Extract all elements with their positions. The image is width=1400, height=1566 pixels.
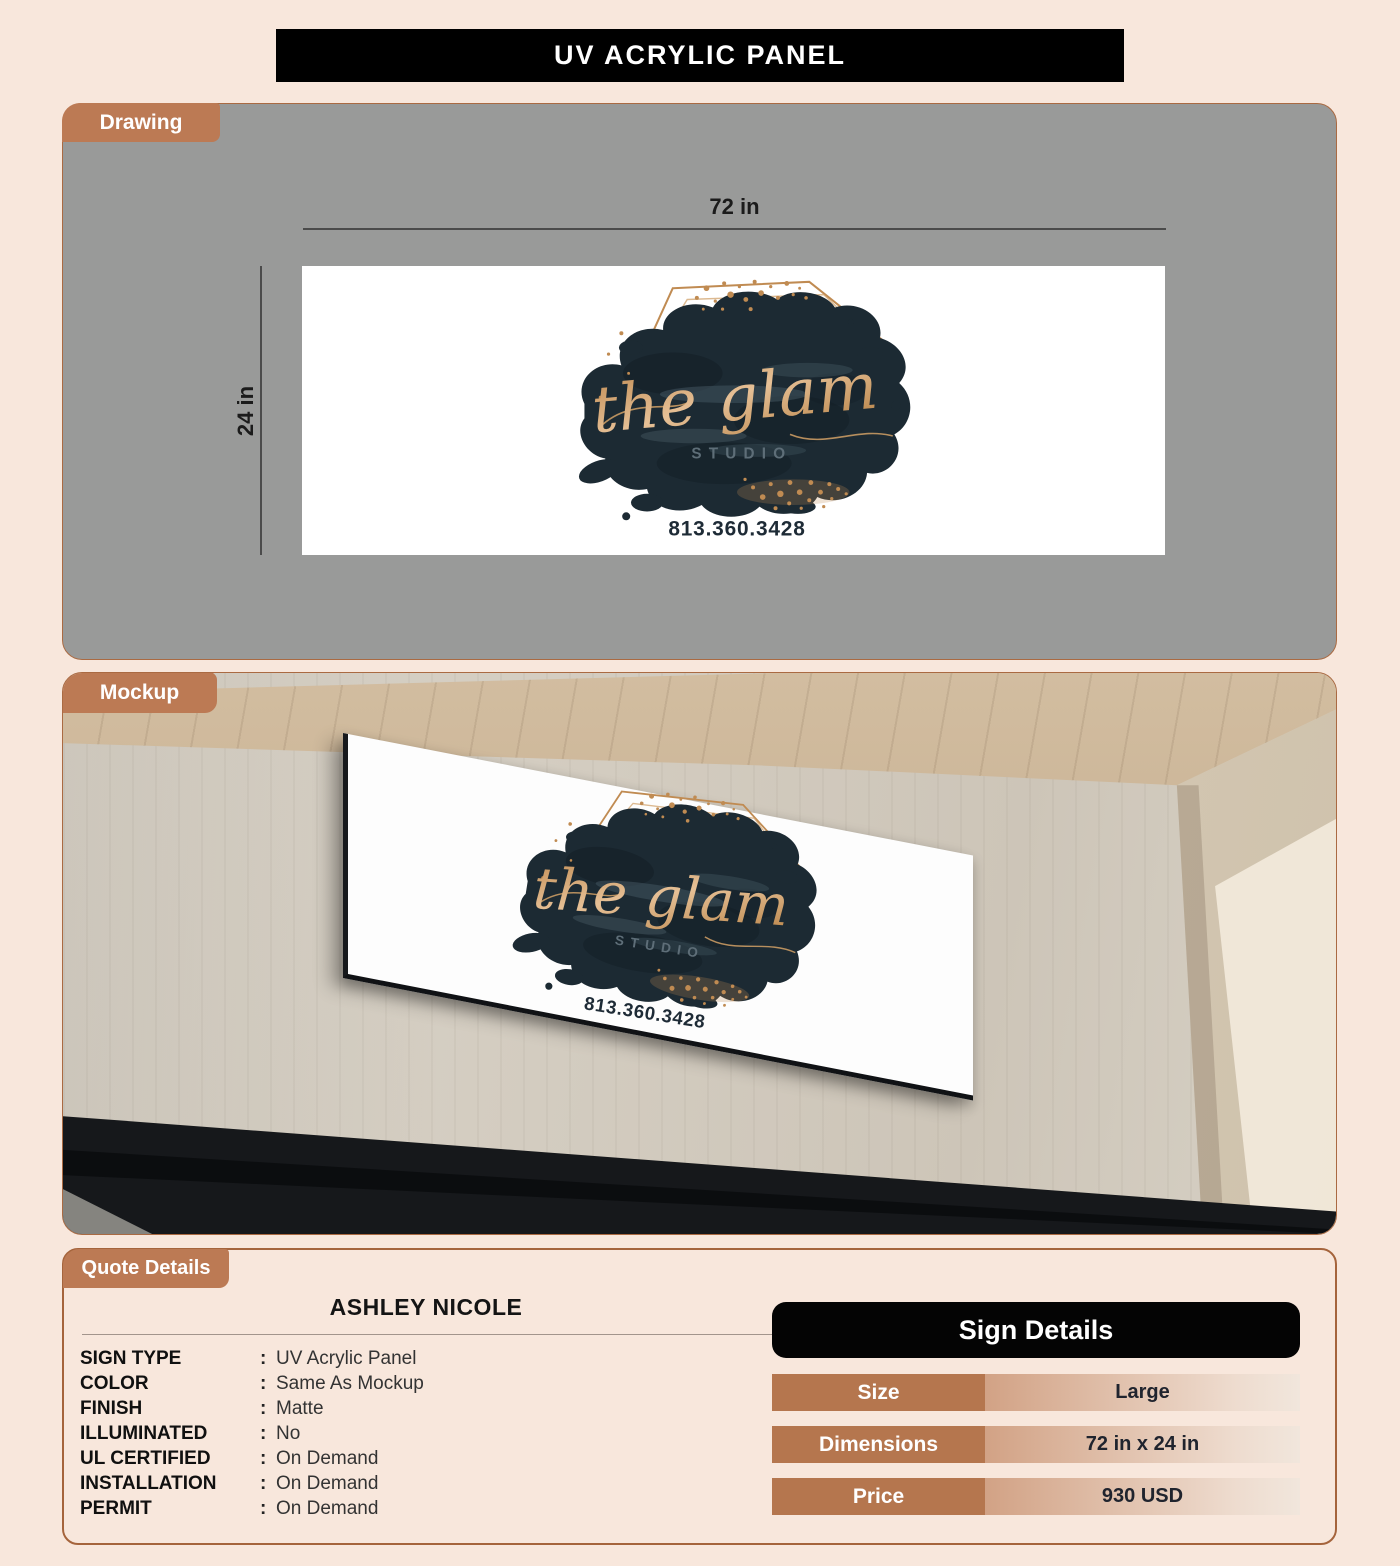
table-row: Dimensions 72 in x 24 in bbox=[772, 1426, 1300, 1463]
field-value: UV Acrylic Panel bbox=[276, 1348, 772, 1370]
field-label: INSTALLATION bbox=[80, 1473, 260, 1495]
mockup-tab: Mockup bbox=[62, 672, 217, 713]
drawing-section: Drawing 72 in 24 in the glam STUDIO 813.… bbox=[62, 103, 1337, 660]
glam-logo-drawing: the glam STUDIO 813.360.3428 bbox=[552, 277, 922, 550]
quote-field-row: SIGN TYPE : UV Acrylic Panel bbox=[80, 1346, 772, 1371]
quote-details-tab: Quote Details bbox=[63, 1249, 229, 1288]
field-value: No bbox=[276, 1423, 772, 1445]
logo-phone-text: 813.360.3428 bbox=[668, 518, 805, 541]
field-value: On Demand bbox=[276, 1473, 772, 1495]
quote-fields-list: SIGN TYPE : UV Acrylic Panel COLOR : Sam… bbox=[80, 1346, 772, 1521]
customer-name-divider bbox=[82, 1334, 772, 1335]
height-dimension-line bbox=[260, 266, 262, 555]
quote-field-row: FINISH : Matte bbox=[80, 1396, 772, 1421]
row-value-price: 930 USD bbox=[985, 1478, 1300, 1515]
field-label: SIGN TYPE bbox=[80, 1348, 260, 1370]
quote-field-row: ILLUMINATED : No bbox=[80, 1421, 772, 1446]
row-value-dimensions: 72 in x 24 in bbox=[985, 1426, 1300, 1463]
mockup-tab-label: Mockup bbox=[100, 681, 179, 705]
quote-details-tab-label: Quote Details bbox=[82, 1257, 211, 1280]
field-value: Matte bbox=[276, 1398, 772, 1420]
field-value: On Demand bbox=[276, 1498, 772, 1520]
quote-field-row: COLOR : Same As Mockup bbox=[80, 1371, 772, 1396]
field-separator: : bbox=[260, 1373, 276, 1395]
mockup-section: the glam STUDIO 813.360.3428 Mockup bbox=[62, 672, 1337, 1235]
sign-details-table: Sign Details Size Large Dimensions 72 in… bbox=[772, 1302, 1300, 1530]
quote-sheet-page: { "title": "UV ACRYLIC PANEL", "drawing"… bbox=[0, 0, 1400, 1566]
field-label: FINISH bbox=[80, 1398, 260, 1420]
field-label: UL CERTIFIED bbox=[80, 1448, 260, 1470]
field-label: ILLUMINATED bbox=[80, 1423, 260, 1445]
field-separator: : bbox=[260, 1473, 276, 1495]
field-separator: : bbox=[260, 1448, 276, 1470]
drawing-tab-label: Drawing bbox=[100, 111, 183, 135]
sign-details-title: Sign Details bbox=[959, 1315, 1114, 1346]
row-label-size: Size bbox=[772, 1374, 985, 1411]
field-label: PERMIT bbox=[80, 1498, 260, 1520]
field-value: Same As Mockup bbox=[276, 1373, 772, 1395]
glam-logo-mockup: the glam STUDIO 813.360.3428 bbox=[479, 765, 843, 1058]
sign-drawing-panel: the glam STUDIO 813.360.3428 bbox=[302, 266, 1165, 555]
field-separator: : bbox=[260, 1348, 276, 1370]
width-dimension-label: 72 in bbox=[303, 194, 1166, 220]
glam-logo-art bbox=[576, 280, 911, 520]
row-label-dimensions: Dimensions bbox=[772, 1426, 985, 1463]
glam-logo-art bbox=[504, 770, 833, 1029]
quote-field-row: UL CERTIFIED : On Demand bbox=[80, 1446, 772, 1471]
customer-name: ASHLEY NICOLE bbox=[80, 1294, 772, 1321]
quote-field-row: INSTALLATION : On Demand bbox=[80, 1471, 772, 1496]
width-dimension-line bbox=[303, 228, 1166, 230]
quote-details-section: Quote Details ASHLEY NICOLE SIGN TYPE : … bbox=[62, 1248, 1337, 1545]
quote-field-row: PERMIT : On Demand bbox=[80, 1496, 772, 1521]
row-label-price: Price bbox=[772, 1478, 985, 1515]
row-value-size: Large bbox=[985, 1374, 1300, 1411]
title-banner: UV ACRYLIC PANEL bbox=[276, 29, 1124, 82]
height-dimension-label: 24 in bbox=[233, 351, 259, 471]
field-separator: : bbox=[260, 1423, 276, 1445]
sign-details-header: Sign Details bbox=[772, 1302, 1300, 1358]
field-label: COLOR bbox=[80, 1373, 260, 1395]
table-row: Price 930 USD bbox=[772, 1478, 1300, 1515]
field-separator: : bbox=[260, 1398, 276, 1420]
field-value: On Demand bbox=[276, 1448, 772, 1470]
page-title: UV ACRYLIC PANEL bbox=[554, 40, 846, 71]
table-row: Size Large bbox=[772, 1374, 1300, 1411]
drawing-tab: Drawing bbox=[62, 103, 220, 142]
field-separator: : bbox=[260, 1498, 276, 1520]
